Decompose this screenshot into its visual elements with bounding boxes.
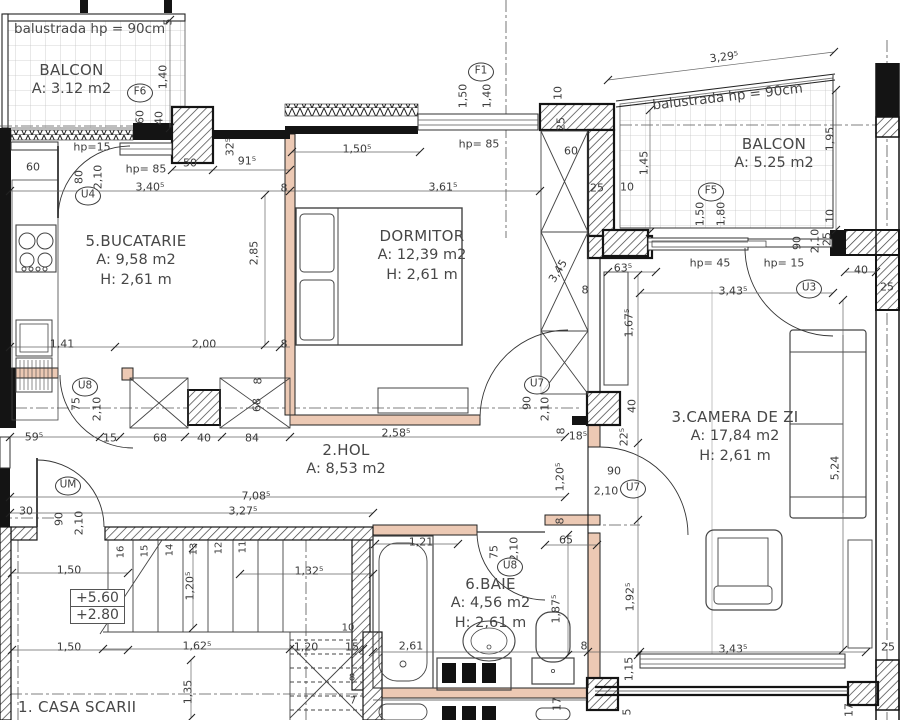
- room-label-camera-de-zi: 3.CAMERA DE ZI A: 17,84 m2 H: 2,61 m: [668, 407, 802, 466]
- balustrade-note-left: balustrada hp = 90cm: [14, 21, 165, 37]
- room-label-dormitor: DORMITOR A: 12,39 m2 H: 2,61 m: [372, 226, 472, 285]
- level-marker: +5.60 +2.80: [70, 589, 125, 624]
- floor-plan-page: { "rooms": [ {"name":"BALCON","area":"A:…: [0, 0, 905, 720]
- room-label-bucatarie: 5.BUCATARIE A: 9,58 m2 H: 2,61 m: [80, 231, 192, 290]
- level-lower: +2.80: [71, 607, 124, 623]
- level-upper: +5.60: [71, 590, 124, 607]
- room-label-hol: 2.HOL A: 8,53 m2: [302, 440, 390, 480]
- room-label-baie: 6.BAIE A: 4,56 m2 H: 2,61 m: [448, 574, 533, 633]
- room-label-balcon-2: BALCON A: 5.25 m2: [728, 134, 820, 174]
- room-label-balcon-1: BALCON A: 3.12 m2: [24, 60, 119, 100]
- room-label-casa-scarii: 1. CASA SCARII: [18, 697, 178, 717]
